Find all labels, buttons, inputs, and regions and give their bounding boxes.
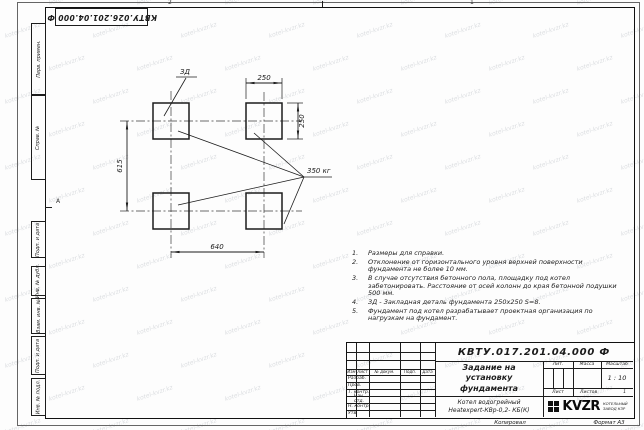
top-stamp-doc-number: КВТУ.026.201.04.000 Ф xyxy=(47,13,157,22)
margin-box-podp-data-1: Подп. и дата xyxy=(31,221,46,258)
note-number: 4. xyxy=(352,299,368,307)
note-number: 3. xyxy=(352,275,368,298)
margin-box-perv-primen: Перв. примен. xyxy=(31,23,46,95)
zone-tick-top xyxy=(322,1,323,7)
note-text: Фундамент под котел разрабатывает проект… xyxy=(368,308,624,323)
zone-tick-left xyxy=(45,207,52,208)
drawing-sheet: kotel-kvzr.kzkotel-kvzr.kzkotel-kvzr.kzk… xyxy=(0,0,644,430)
note-number: 2. xyxy=(352,259,368,274)
margin-box-label: Справ. № xyxy=(36,125,42,149)
divider-line xyxy=(400,343,401,417)
col-header-date: Дата xyxy=(420,369,435,375)
divider-line xyxy=(553,368,554,388)
zone-number-2: 2 xyxy=(168,0,172,6)
top-stamp: КВТУ.026.201.04.000 Ф xyxy=(55,8,148,26)
note-item: 1.Размеры для справки. xyxy=(352,250,624,258)
divider-line xyxy=(420,343,421,417)
product-line-2: Heatexpert-КВр-0,2- КБ(К) xyxy=(448,407,529,415)
zone-number-1: 1 xyxy=(470,0,474,6)
product-line-1: Котел водогрейный xyxy=(458,399,521,407)
scale-value: 1 : 10 xyxy=(601,368,633,388)
divider-line xyxy=(347,352,435,353)
divider-line xyxy=(347,360,435,361)
kvzr-logo-icon xyxy=(548,401,559,412)
logo-caption-line2: ЗАВОД КЗР xyxy=(603,407,628,412)
col-header-sign: Подп. xyxy=(400,369,420,375)
note-text: ЗД - Закладная деталь фундамента 250х250… xyxy=(368,299,624,307)
margin-box-vzam-inv: Взам. инв. № xyxy=(31,298,46,334)
note-number: 1. xyxy=(352,250,368,258)
margin-box-label: Подп. и дата xyxy=(36,222,42,256)
scale-header: Масштаб xyxy=(601,361,633,368)
margin-box-inv-podl: Инв. № подл. xyxy=(31,378,46,416)
kvzr-logo-text: KVZR xyxy=(562,399,600,414)
note-text: Размеры для справки. xyxy=(368,250,624,258)
note-text: Отклонение от горизонтального уровня вер… xyxy=(368,259,624,274)
margin-box-podp-data-2: Подп. и дата xyxy=(31,336,46,375)
kvzr-logo-caption: КОТЕЛЬНЫЙ ЗАВОД КЗР xyxy=(603,402,628,412)
divider-line xyxy=(563,368,564,388)
title-block-doc-number: КВТУ.017.201.04.000 Ф xyxy=(435,343,633,361)
margin-box-sprav: Справ. № xyxy=(31,95,46,180)
col-header-docnum: № докум. xyxy=(369,369,400,375)
notes-block: 1.Размеры для справки. 2.Отклонение от г… xyxy=(352,250,624,324)
copied-label: Копировал xyxy=(478,420,542,426)
note-item: 3.В случае отсутствия бетонного пола, пл… xyxy=(352,275,624,298)
margin-box-label: Взам. инв. № xyxy=(36,299,42,333)
note-item: 2.Отклонение от горизонтального уровня в… xyxy=(352,259,624,274)
note-item: 4.ЗД - Закладная деталь фундамента 250х2… xyxy=(352,299,624,307)
note-number: 5. xyxy=(352,308,368,323)
margin-box-label: Подп. и дата xyxy=(36,338,42,372)
sheet-label: Лист xyxy=(543,388,573,396)
note-text: В случае отсутствия бетонного пола, площ… xyxy=(368,275,624,298)
role-n-kontr: Н. контр. xyxy=(348,403,370,410)
margin-box-label: Перв. примен. xyxy=(36,40,42,78)
role-razrab: Разраб. xyxy=(348,375,370,382)
role-prov: Пров. xyxy=(348,382,370,389)
role-nach-otd: Нач. отд. xyxy=(348,396,370,403)
zone-letter-a: А xyxy=(56,198,60,205)
product-name: Котел водогрейный Heatexpert-КВр-0,2- КБ… xyxy=(435,396,543,417)
margin-box-label: Инв. № дубл. xyxy=(36,264,42,298)
role-utv: Утв. xyxy=(348,410,370,417)
title-block: Изм Лист № докум. Подп. Дата Разраб. Про… xyxy=(346,342,635,419)
margin-box-inv-dubl: Инв. № дубл. xyxy=(31,266,46,296)
format-label: Формат А3 xyxy=(583,420,635,426)
drawing-title: Задание на установку фундамента xyxy=(435,361,543,396)
note-item: 5.Фундамент под котел разрабатывает прое… xyxy=(352,308,624,323)
sheets-cell: Листов 1 xyxy=(573,388,633,396)
sheets-value: 1 xyxy=(623,390,626,395)
lit-header: Лит. xyxy=(543,361,573,368)
margin-box-label: Инв. № подл. xyxy=(36,380,42,415)
company-logo-cell: KVZR КОТЕЛЬНЫЙ ЗАВОД КЗР xyxy=(543,396,633,417)
sheets-label: Листов xyxy=(580,390,597,395)
mass-header: Масса xyxy=(573,361,601,368)
